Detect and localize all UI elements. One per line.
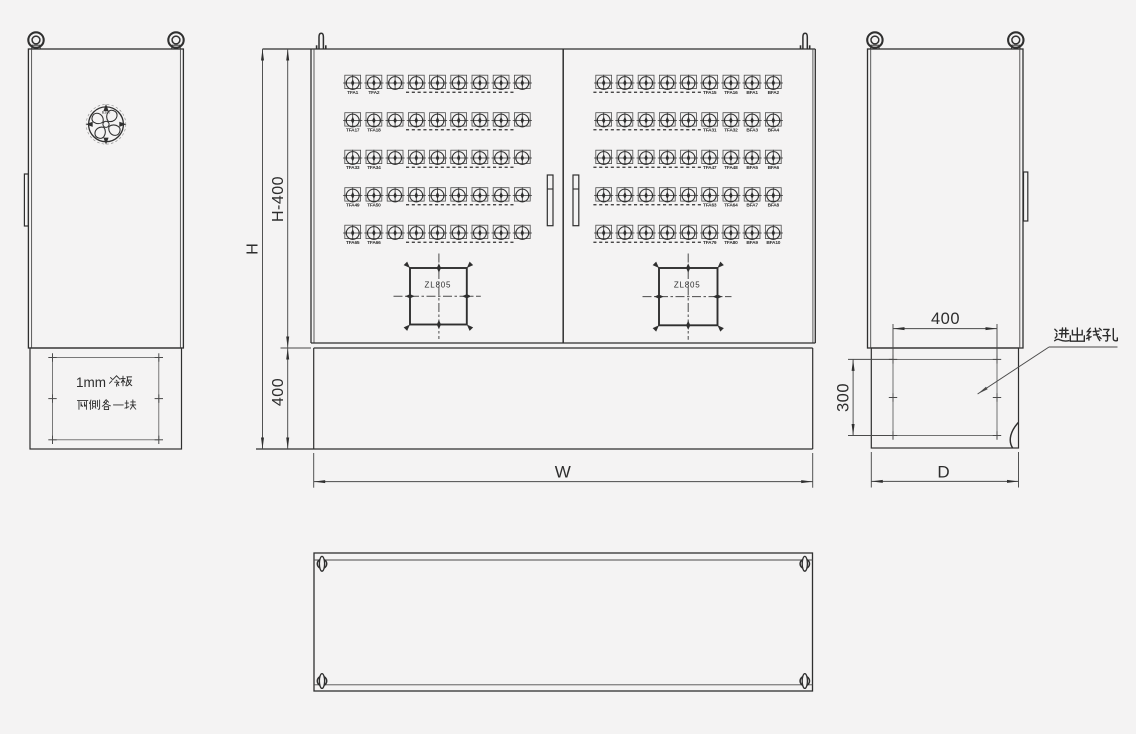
svg-text:TFA17: TFA17 xyxy=(346,128,360,134)
svg-text:BFA2: BFA2 xyxy=(768,90,780,96)
svg-text:TFA63: TFA63 xyxy=(703,203,717,209)
svg-text:1mm: 1mm xyxy=(76,375,106,390)
svg-text:TFA16: TFA16 xyxy=(724,90,738,96)
svg-text:TFA47: TFA47 xyxy=(703,165,717,171)
svg-text:TFA18: TFA18 xyxy=(367,128,381,134)
svg-text:BFA9: BFA9 xyxy=(746,240,758,246)
svg-text:TFA31: TFA31 xyxy=(703,128,717,134)
svg-text:BFA6: BFA6 xyxy=(768,165,780,171)
svg-text:TFA2: TFA2 xyxy=(368,90,379,96)
svg-text:TFA15: TFA15 xyxy=(703,90,717,96)
svg-text:TFA65: TFA65 xyxy=(346,240,360,246)
svg-text:BFA8: BFA8 xyxy=(768,203,780,209)
svg-text:H: H xyxy=(245,243,262,255)
svg-text:TFA79: TFA79 xyxy=(703,240,717,246)
svg-text:TFA80: TFA80 xyxy=(724,240,738,246)
svg-text:D: D xyxy=(937,463,949,482)
svg-text:H-400: H-400 xyxy=(270,176,287,222)
svg-text:TFA1: TFA1 xyxy=(347,90,358,96)
svg-text:BFA5: BFA5 xyxy=(746,165,758,171)
svg-text:TFA34: TFA34 xyxy=(367,165,381,171)
svg-text:BFA3: BFA3 xyxy=(746,128,758,134)
svg-text:BFA1: BFA1 xyxy=(746,90,758,96)
svg-text:TFA33: TFA33 xyxy=(346,165,360,171)
svg-text:400: 400 xyxy=(270,378,287,406)
svg-text:TFA50: TFA50 xyxy=(367,203,381,209)
svg-text:BFA4: BFA4 xyxy=(768,128,780,134)
svg-text:300: 300 xyxy=(834,383,852,412)
svg-text:TFA49: TFA49 xyxy=(346,203,360,209)
svg-text:TFA32: TFA32 xyxy=(724,128,738,134)
svg-text:TFA64: TFA64 xyxy=(724,203,738,209)
svg-text:B300: B300 xyxy=(102,111,110,115)
svg-text:ZL805: ZL805 xyxy=(674,281,701,290)
svg-text:TFA48: TFA48 xyxy=(724,165,738,171)
svg-text:400: 400 xyxy=(931,310,960,328)
svg-text:W: W xyxy=(555,463,571,482)
svg-text:BFA10: BFA10 xyxy=(766,240,780,246)
svg-text:TFA66: TFA66 xyxy=(367,240,381,246)
svg-text:ZL805: ZL805 xyxy=(425,281,452,290)
svg-text:BFA7: BFA7 xyxy=(746,203,758,209)
